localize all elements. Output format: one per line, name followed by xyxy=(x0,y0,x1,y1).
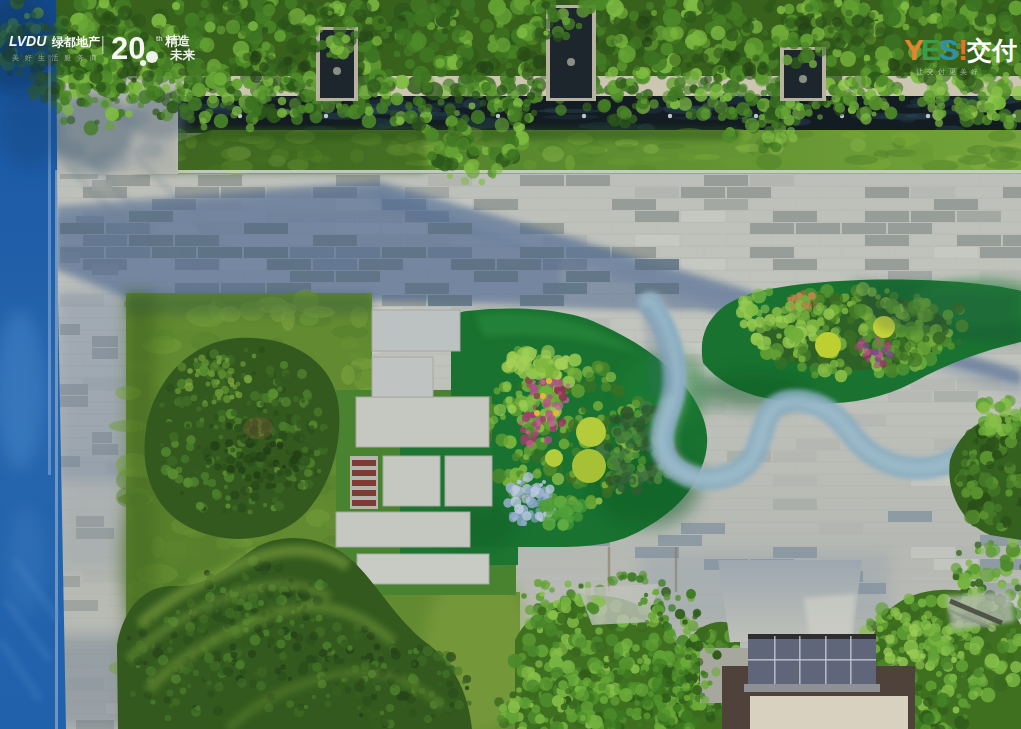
svg-text:E: E xyxy=(921,33,941,66)
svg-text:LVDU: LVDU xyxy=(9,33,47,49)
svg-text:绿都地产: 绿都地产 xyxy=(51,35,100,49)
svg-text:交付: 交付 xyxy=(966,36,1017,64)
svg-text:美好生活服务商: 美好生活服务商 xyxy=(12,54,103,62)
svg-text:让交付更美好: 让交付更美好 xyxy=(916,68,982,76)
svg-text:未来: 未来 xyxy=(169,48,196,62)
svg-text:S: S xyxy=(939,33,959,66)
svg-text:精造: 精造 xyxy=(164,34,191,48)
svg-text:th: th xyxy=(156,34,163,43)
svg-text:20: 20 xyxy=(111,31,145,66)
